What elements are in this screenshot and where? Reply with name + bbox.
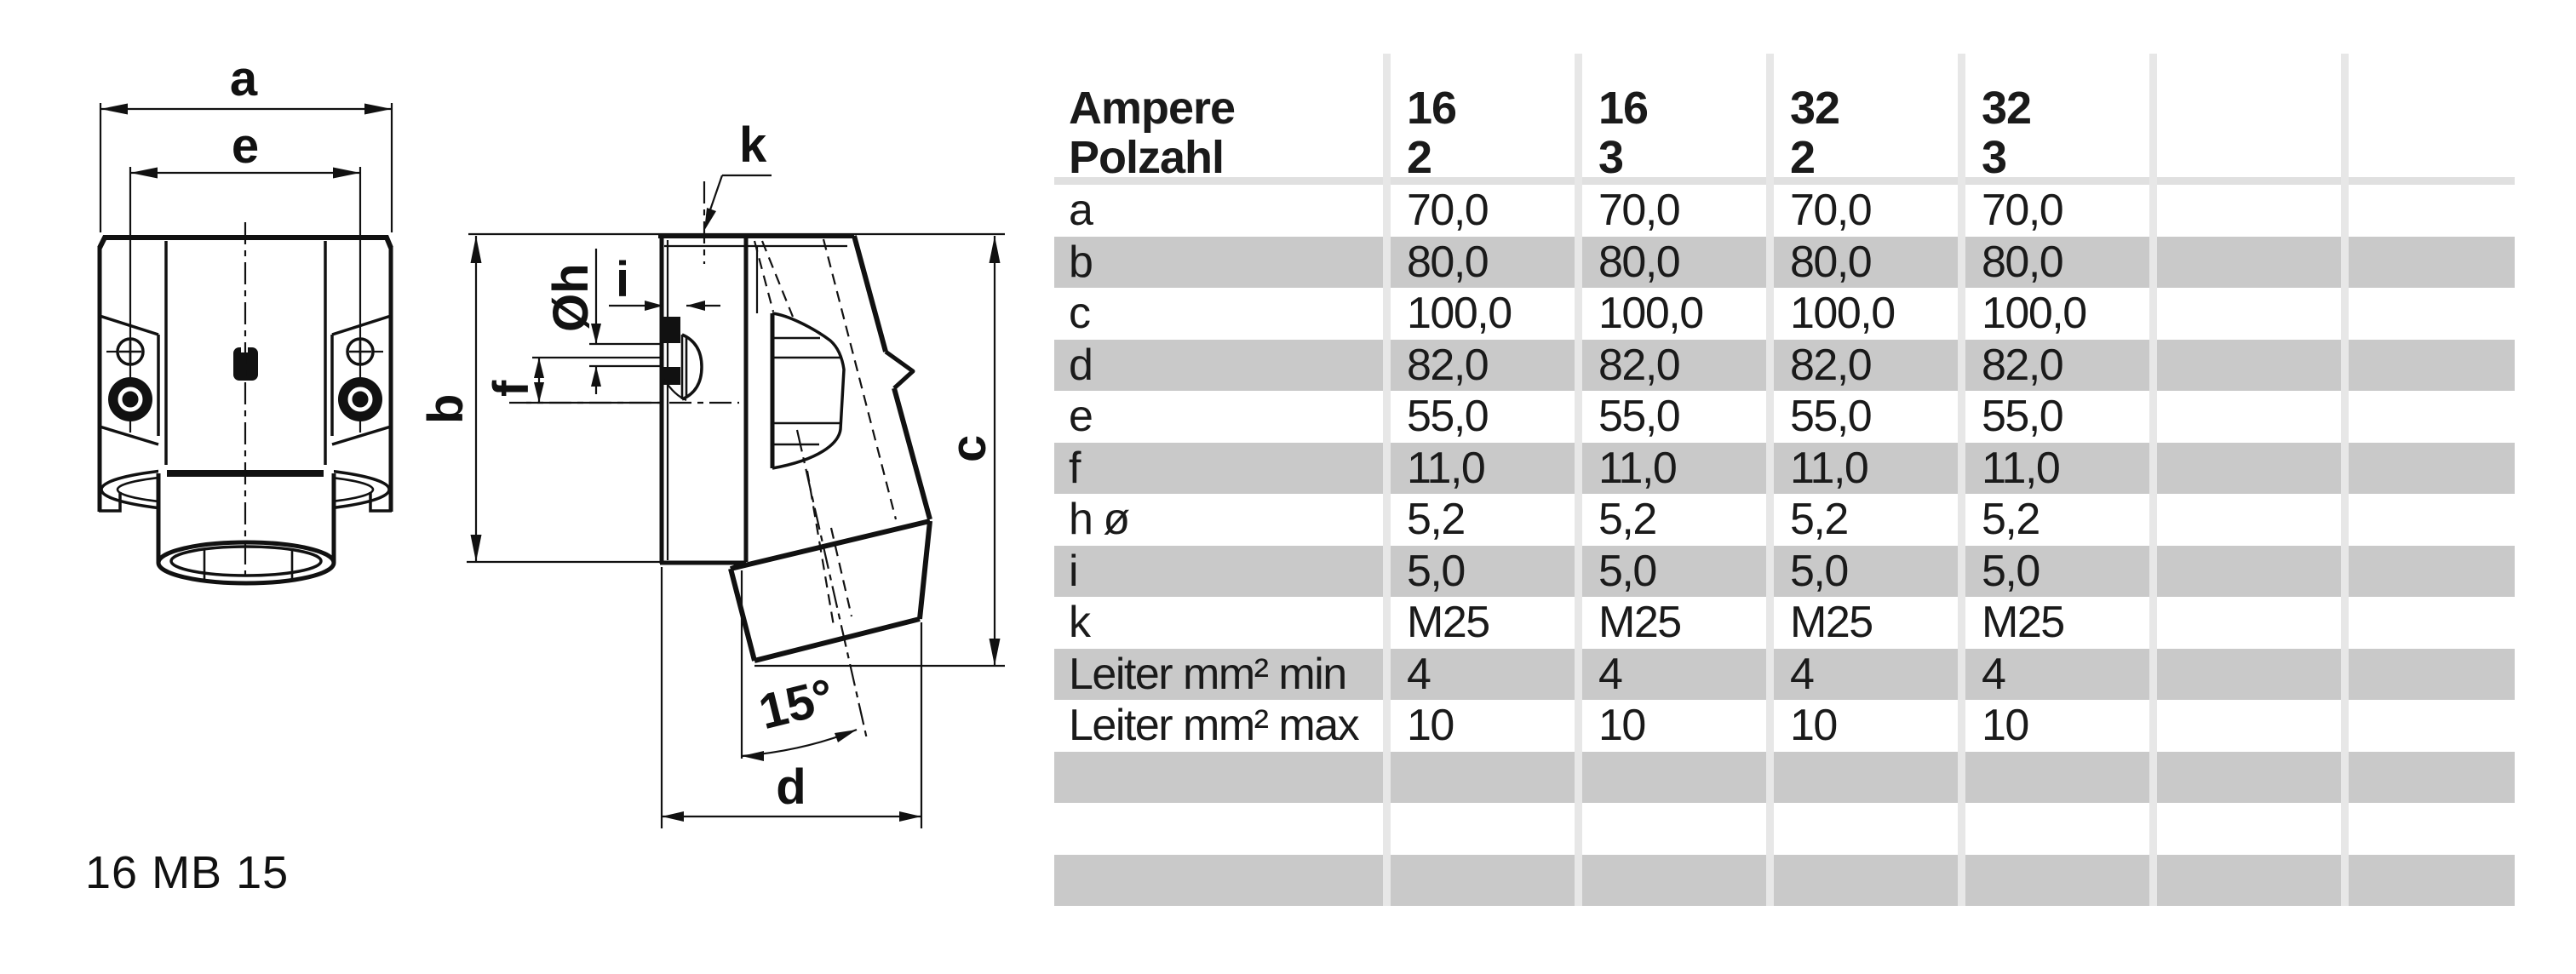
- table-cell: 100,0: [1578, 288, 1770, 339]
- table-cell: 55,0: [1386, 391, 1578, 442]
- table-header: Ampere Polzahl 16 2 16 3 32 2 32 3: [1054, 0, 2515, 177]
- header-polzahl-label: Polzahl: [1069, 133, 1386, 182]
- catalog-page: a e: [0, 0, 2576, 974]
- dimension-i: i: [609, 252, 720, 311]
- column-separator: [2341, 54, 2349, 906]
- table-cell: 82,0: [1770, 340, 1961, 391]
- table-row: d82,082,082,082,0: [1054, 340, 2515, 392]
- table-cell: 11,0: [1386, 443, 1578, 494]
- dim-label-c: c: [941, 435, 996, 462]
- table-cell: 70,0: [1770, 185, 1961, 236]
- table-cell: 80,0: [1770, 237, 1961, 288]
- table-cell: 100,0: [1961, 288, 2153, 339]
- column-separator: [1958, 54, 1965, 906]
- table-cell: M25: [1770, 597, 1961, 648]
- table-cell: 5,2: [1770, 494, 1961, 545]
- col4-poles: 3: [1982, 133, 2153, 182]
- table-row: [1054, 752, 2515, 804]
- table-cell: 11,0: [1770, 443, 1961, 494]
- dimension-k: k: [704, 117, 772, 264]
- table-cell: 55,0: [1578, 391, 1770, 442]
- table-cell: 4: [1770, 649, 1961, 700]
- model-number: 16 MB 15: [85, 847, 289, 898]
- table-cell: 10: [1578, 700, 1770, 751]
- header-label-cell: Ampere Polzahl: [1054, 0, 1386, 182]
- table-cell: 5,0: [1961, 546, 2153, 597]
- dim-label-b: b: [418, 394, 473, 424]
- col3-poles: 2: [1790, 133, 1961, 182]
- table-cell: M25: [1961, 597, 2153, 648]
- dim-label-i: i: [616, 252, 629, 307]
- row-label: d: [1054, 340, 1386, 391]
- table-cell: 70,0: [1961, 185, 2153, 236]
- table-cell: 4: [1578, 649, 1770, 700]
- column-separator: [1766, 54, 1774, 906]
- column-separator: [1575, 54, 1582, 906]
- dim-label-e: e: [232, 118, 259, 174]
- table-cell: 10: [1961, 700, 2153, 751]
- row-label: b: [1054, 237, 1386, 288]
- table-cell: 4: [1386, 649, 1578, 700]
- dimension-f: f: [484, 358, 663, 403]
- table-row: kM25M25M25M25: [1054, 597, 2515, 649]
- header-col-4: 32 3: [1961, 0, 2153, 182]
- table-cell: M25: [1386, 597, 1578, 648]
- col2-ampere: 16: [1598, 83, 1770, 133]
- table-cell: 5,0: [1770, 546, 1961, 597]
- table-row: Leiter mm² min4444: [1054, 649, 2515, 701]
- dim-label-hole-diameter: Øh: [543, 263, 599, 332]
- dimension-c: c: [754, 236, 1005, 666]
- table-row: [1054, 803, 2515, 855]
- technical-drawing: a e: [0, 0, 1064, 974]
- table-cell: 80,0: [1961, 237, 2153, 288]
- table-row: e55,055,055,055,0: [1054, 391, 2515, 443]
- dim-label-a: a: [230, 51, 258, 106]
- header-col-6-empty: [2344, 0, 2515, 182]
- dimension-hole-diameter: Øh: [543, 249, 601, 394]
- table-cell: 10: [1386, 700, 1578, 751]
- header-col-1: 16 2: [1386, 0, 1578, 182]
- col3-ampere: 32: [1790, 83, 1961, 133]
- table-row: f11,011,011,011,0: [1054, 443, 2515, 495]
- col4-ampere: 32: [1982, 83, 2153, 133]
- table-cell: 5,2: [1578, 494, 1770, 545]
- dim-label-f: f: [484, 380, 539, 397]
- column-separator: [1383, 54, 1391, 906]
- row-label: i: [1054, 546, 1386, 597]
- col2-poles: 3: [1598, 133, 1770, 182]
- row-label: e: [1054, 391, 1386, 442]
- front-view-drawing: a e: [99, 51, 392, 583]
- table-cell: 82,0: [1961, 340, 2153, 391]
- row-label: Leiter mm² max: [1054, 700, 1386, 751]
- table-row: i5,05,05,05,0: [1054, 546, 2515, 598]
- column-separator: [2149, 54, 2157, 906]
- table-row: a70,070,070,070,0: [1054, 185, 2515, 237]
- row-label: k: [1054, 597, 1386, 648]
- table-row: b80,080,080,080,0: [1054, 237, 2515, 289]
- dim-label-k: k: [739, 117, 767, 173]
- header-col-3: 32 2: [1770, 0, 1961, 182]
- row-label: f: [1054, 443, 1386, 494]
- table-row: [1054, 855, 2515, 907]
- col1-poles: 2: [1407, 133, 1578, 182]
- row-label: h ø: [1054, 494, 1386, 545]
- row-label: a: [1054, 185, 1386, 236]
- table-body: a70,070,070,070,0b80,080,080,080,0c100,0…: [1054, 185, 2515, 906]
- table-cell: 100,0: [1386, 288, 1578, 339]
- table-row: h ø5,25,25,25,2: [1054, 494, 2515, 546]
- table-cell: 4: [1961, 649, 2153, 700]
- table-cell: 5,2: [1386, 494, 1578, 545]
- table-cell: 5,2: [1961, 494, 2153, 545]
- header-col-5-empty: [2153, 0, 2344, 182]
- row-label: Leiter mm² min: [1054, 649, 1386, 700]
- dimension-table: Ampere Polzahl 16 2 16 3 32 2 32 3 a7: [1054, 0, 2515, 906]
- table-cell: 11,0: [1578, 443, 1770, 494]
- table-cell: M25: [1578, 597, 1770, 648]
- table-cell: 11,0: [1961, 443, 2153, 494]
- table-cell: 100,0: [1770, 288, 1961, 339]
- col1-ampere: 16: [1407, 83, 1578, 133]
- table-cell: 80,0: [1578, 237, 1770, 288]
- table-row: c100,0100,0100,0100,0: [1054, 288, 2515, 340]
- table-cell: 82,0: [1386, 340, 1578, 391]
- header-ampere-label: Ampere: [1069, 83, 1386, 133]
- side-view-drawing: k: [418, 117, 1005, 828]
- table-cell: 82,0: [1578, 340, 1770, 391]
- dim-label-d: d: [776, 759, 806, 815]
- table-cell: 5,0: [1386, 546, 1578, 597]
- table-cell: 10: [1770, 700, 1961, 751]
- header-col-2: 16 3: [1578, 0, 1770, 182]
- table-cell: 80,0: [1386, 237, 1578, 288]
- table-cell: 70,0: [1578, 185, 1770, 236]
- table-cell: 55,0: [1770, 391, 1961, 442]
- row-label: c: [1054, 288, 1386, 339]
- table-cell: 70,0: [1386, 185, 1578, 236]
- dim-label-angle: 15°: [754, 668, 840, 740]
- table-cell: 55,0: [1961, 391, 2153, 442]
- table-row: Leiter mm² max10101010: [1054, 700, 2515, 752]
- table-cell: 5,0: [1578, 546, 1770, 597]
